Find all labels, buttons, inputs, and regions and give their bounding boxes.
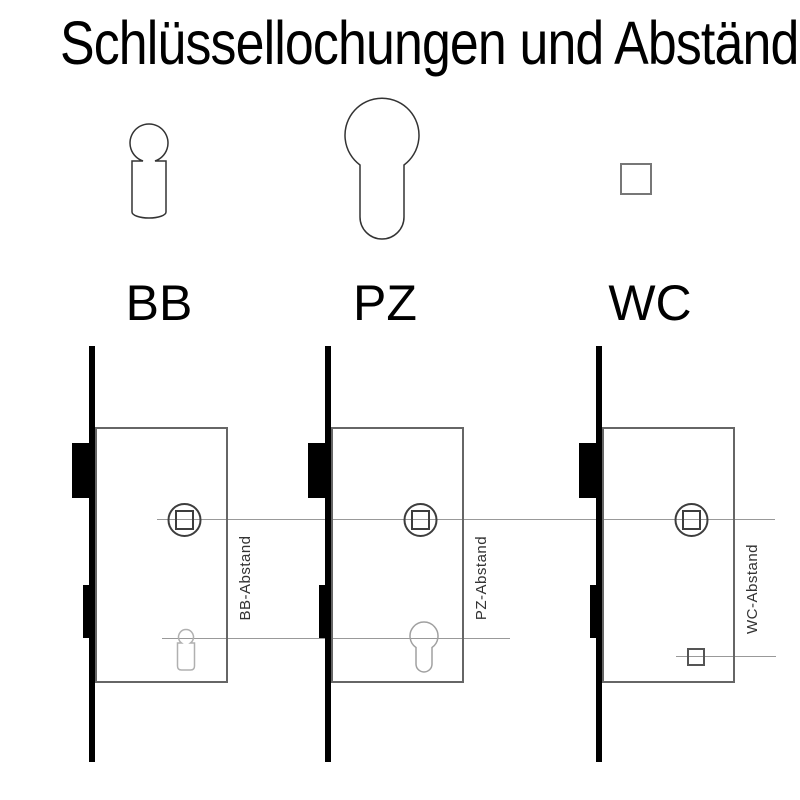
follower-nut-icon [384,484,456,556]
bb-keyhole-cutout-icon [170,625,202,675]
deadbolt [319,585,325,638]
latch-bolt [308,443,325,498]
pz-profile-cylinder-icon [340,95,426,245]
follower-nut-icon [148,484,220,556]
bb-keyhole-icon [119,114,181,224]
legend-label-bb: BB [99,278,219,328]
wc-square-cutout-icon [687,648,705,666]
page-title: Schlüssellochungen und Abstände [60,8,740,78]
deadbolt [590,585,596,638]
distance-label-bb: BB-Abstand [235,518,257,638]
distance-label-pz: PZ-Abstand [471,518,493,638]
legend-label-wc: WC [590,278,710,328]
deadbolt [83,585,89,638]
latch-bolt [579,443,596,498]
wc-square-icon [620,163,652,195]
distance-label-wc: WC-Abstand [742,529,764,649]
follower-nut-icon [655,484,727,556]
latch-bolt [72,443,89,498]
pz-cylinder-cutout-icon [405,618,445,678]
diagram-canvas: Schlüssellochungen und Abstände BB PZ WC… [0,0,800,800]
legend-label-pz: PZ [325,278,445,328]
